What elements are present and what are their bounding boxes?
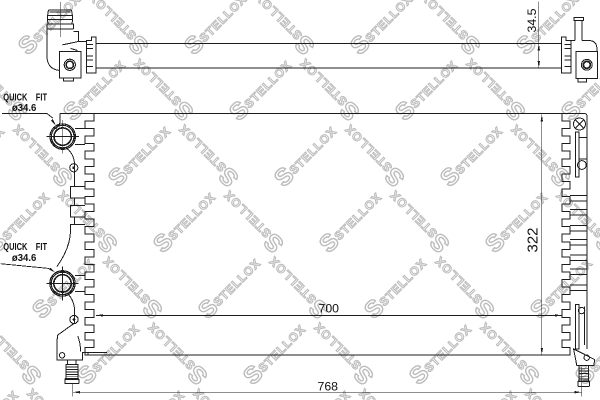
svg-text:FIT: FIT (36, 241, 48, 252)
svg-text:QUICK: QUICK (3, 241, 27, 252)
svg-text:700: 700 (319, 302, 340, 316)
svg-text:768: 768 (318, 380, 339, 394)
svg-text:322: 322 (525, 227, 542, 252)
svg-text:QUICK: QUICK (3, 91, 27, 102)
svg-text:ø34.6: ø34.6 (12, 103, 37, 114)
svg-text:ø34.6: ø34.6 (12, 253, 37, 264)
svg-text:FIT: FIT (36, 91, 48, 102)
svg-text:34.5: 34.5 (525, 8, 539, 32)
